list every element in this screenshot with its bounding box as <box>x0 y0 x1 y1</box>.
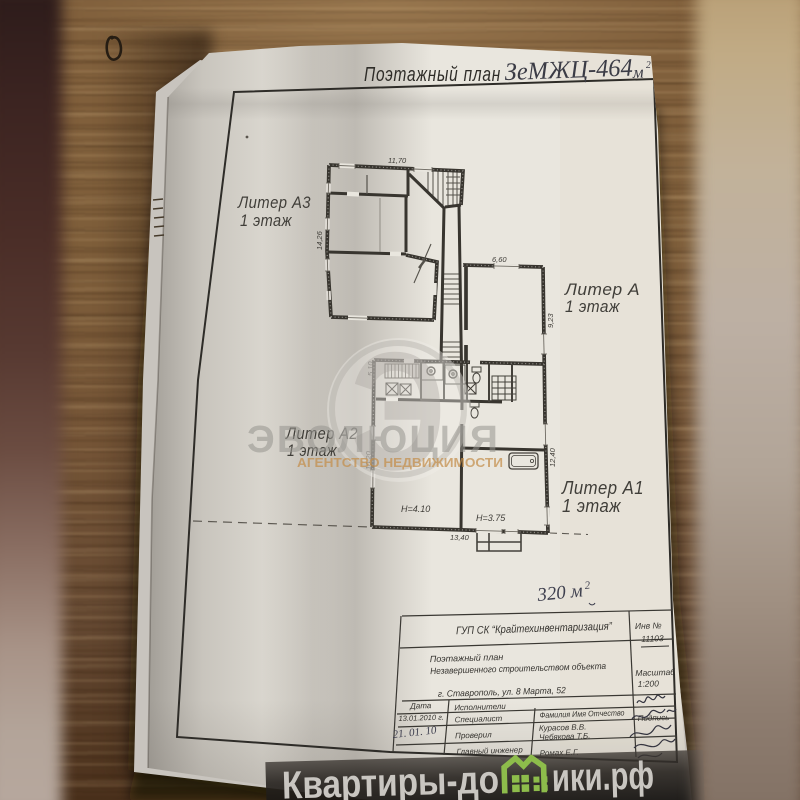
svg-text:Масштаб: Масштаб <box>635 667 676 678</box>
svg-text:Дата: Дата <box>409 701 432 711</box>
svg-text:9,23: 9,23 <box>546 313 555 328</box>
svg-text:ики.рф: ики.рф <box>551 754 654 800</box>
svg-text:Подпись: Подпись <box>638 713 670 723</box>
svg-text:Чебякова Т.Б.: Чебякова Т.Б. <box>539 731 590 742</box>
svg-text:Проверил: Проверил <box>455 730 492 740</box>
svg-text:Квартиры-до: Квартиры-до <box>281 759 499 800</box>
svg-text:Н=3.75: Н=3.75 <box>476 513 506 523</box>
svg-text:14,26: 14,26 <box>315 230 324 250</box>
svg-text:Литер А1: Литер А1 <box>561 478 644 498</box>
svg-text:Поэтажный план: Поэтажный план <box>364 64 501 86</box>
svg-text:11,70: 11,70 <box>388 156 407 165</box>
svg-text:13.01.2010 г.: 13.01.2010 г. <box>398 713 444 723</box>
svg-text:13,40: 13,40 <box>450 533 470 542</box>
svg-text:ЗеМЖЦ-464: ЗеМЖЦ-464 <box>504 55 633 86</box>
svg-text:Специалист: Специалист <box>454 714 502 724</box>
svg-text:1 этаж: 1 этаж <box>565 297 621 316</box>
svg-text:Исполнители: Исполнители <box>454 702 506 713</box>
svg-text:м: м <box>631 62 644 82</box>
svg-text:Н=4.10: Н=4.10 <box>401 504 430 514</box>
svg-text:2: 2 <box>646 60 652 71</box>
svg-text:1:200: 1:200 <box>637 678 659 689</box>
svg-text:6,60: 6,60 <box>492 255 507 264</box>
svg-text:ЭВОЛЮЦИЯ: ЭВОЛЮЦИЯ <box>247 419 500 461</box>
svg-text:Э: Э <box>350 318 446 506</box>
svg-text:АГЕНТСТВО НЕДВИЖИМОСТИ: АГЕНТСТВО НЕДВИЖИМОСТИ <box>297 456 503 470</box>
svg-text:12,40: 12,40 <box>548 447 557 467</box>
svg-text:1 этаж: 1 этаж <box>240 211 293 230</box>
svg-text:Литер А3: Литер А3 <box>237 193 311 212</box>
svg-text:1 этаж: 1 этаж <box>562 496 622 516</box>
svg-text:11103: 11103 <box>641 633 664 644</box>
svg-text:Инв №: Инв № <box>635 620 662 631</box>
